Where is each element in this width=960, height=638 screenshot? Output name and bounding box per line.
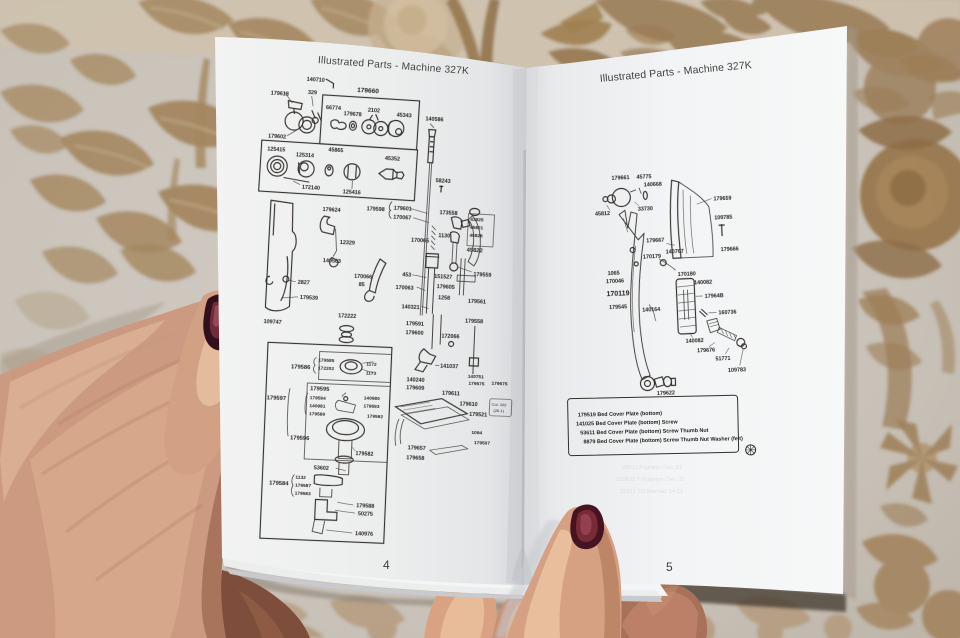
svg-text:170119: 170119 bbox=[606, 290, 629, 298]
svg-text:179558: 179558 bbox=[465, 319, 483, 326]
svg-text:179591: 179591 bbox=[406, 321, 424, 328]
svg-text:170180: 170180 bbox=[678, 271, 696, 278]
svg-text:51771: 51771 bbox=[715, 356, 730, 363]
svg-text:45343: 45343 bbox=[396, 113, 411, 120]
svg-text:179678: 179678 bbox=[343, 111, 361, 118]
svg-text:179660: 179660 bbox=[357, 87, 379, 95]
svg-text:125416: 125416 bbox=[343, 189, 361, 196]
svg-text:141037: 141037 bbox=[440, 364, 458, 371]
svg-text:109783: 109783 bbox=[728, 367, 746, 374]
svg-text:179595: 179595 bbox=[310, 386, 330, 393]
svg-text:2102: 2102 bbox=[368, 108, 380, 115]
svg-text:179507: 179507 bbox=[474, 440, 491, 447]
svg-text:140710: 140710 bbox=[307, 77, 325, 84]
svg-text:170046: 170046 bbox=[606, 278, 624, 285]
svg-text:125314: 125314 bbox=[296, 152, 314, 159]
svg-text:140751: 140751 bbox=[468, 374, 485, 381]
svg-text:66774: 66774 bbox=[326, 105, 341, 112]
svg-text:179582: 179582 bbox=[355, 451, 373, 458]
svg-text:1130: 1130 bbox=[438, 233, 450, 240]
svg-text:172066: 172066 bbox=[441, 334, 459, 341]
svg-text:5: 5 bbox=[666, 560, 673, 574]
svg-text:179575: 179575 bbox=[468, 381, 485, 388]
svg-text:453: 453 bbox=[402, 272, 411, 278]
svg-text:33730: 33730 bbox=[638, 206, 653, 213]
svg-text:58243: 58243 bbox=[435, 178, 450, 185]
svg-text:17964B: 17964B bbox=[705, 293, 724, 300]
svg-text:179593: 179593 bbox=[363, 403, 380, 410]
svg-text:129632 T Bughton Oec. 31: 129632 T Bughton Oec. 31 bbox=[616, 477, 685, 483]
svg-text:179592: 179592 bbox=[367, 414, 384, 421]
svg-text:45352: 45352 bbox=[385, 156, 400, 163]
svg-text:179667: 179667 bbox=[646, 238, 664, 245]
svg-text:179545: 179545 bbox=[609, 304, 627, 311]
svg-text:170067: 170067 bbox=[393, 215, 411, 222]
svg-text:179661: 179661 bbox=[611, 175, 629, 182]
svg-text:45775: 45775 bbox=[636, 174, 651, 181]
svg-text:179584: 179584 bbox=[269, 480, 289, 487]
svg-text:45812: 45812 bbox=[595, 211, 610, 218]
svg-text:179575: 179575 bbox=[491, 381, 508, 388]
svg-text:179610: 179610 bbox=[459, 401, 477, 408]
svg-text:1258: 1258 bbox=[438, 295, 450, 302]
svg-text:85: 85 bbox=[359, 282, 365, 288]
svg-text:179586: 179586 bbox=[291, 364, 311, 371]
svg-text:179605: 179605 bbox=[437, 284, 455, 291]
svg-text:140976: 140976 bbox=[355, 531, 373, 538]
svg-text:140668: 140668 bbox=[644, 182, 662, 189]
svg-text:179602: 179602 bbox=[268, 133, 286, 140]
svg-text:140767: 140767 bbox=[666, 249, 684, 256]
svg-text:179659: 179659 bbox=[713, 196, 731, 203]
svg-text:179594: 179594 bbox=[310, 395, 327, 402]
svg-text:4: 4 bbox=[383, 558, 390, 572]
svg-text:140981: 140981 bbox=[309, 403, 326, 410]
svg-text:179521: 179521 bbox=[469, 412, 487, 419]
svg-text:45826: 45826 bbox=[469, 233, 483, 240]
svg-text:109747: 109747 bbox=[263, 319, 281, 326]
svg-text:179666: 179666 bbox=[721, 246, 739, 253]
svg-text:50275: 50275 bbox=[358, 511, 373, 518]
svg-text:179588: 179588 bbox=[356, 503, 374, 510]
svg-text:179611: 179611 bbox=[442, 391, 460, 398]
svg-text:140321: 140321 bbox=[401, 304, 419, 311]
svg-text:179585: 179585 bbox=[318, 357, 335, 364]
svg-text:179658: 179658 bbox=[406, 455, 424, 462]
svg-text:172222: 172222 bbox=[338, 313, 356, 320]
svg-text:179676: 179676 bbox=[697, 348, 715, 355]
svg-text:179624: 179624 bbox=[322, 207, 340, 214]
svg-text:179596: 179596 bbox=[290, 435, 310, 442]
svg-text:173558: 173558 bbox=[439, 210, 457, 217]
svg-text:179561: 179561 bbox=[468, 299, 486, 306]
svg-text:125415: 125415 bbox=[267, 146, 285, 153]
svg-text:1172: 1172 bbox=[366, 361, 377, 367]
svg-text:179587: 179587 bbox=[295, 483, 312, 490]
svg-text:170063: 170063 bbox=[395, 285, 413, 292]
svg-text:172202: 172202 bbox=[318, 365, 335, 372]
svg-text:140082: 140082 bbox=[686, 338, 704, 345]
svg-text:179600: 179600 bbox=[405, 330, 423, 337]
svg-text:151527: 151527 bbox=[434, 274, 452, 281]
svg-text:32611 TO Machac 14-11: 32611 TO Machac 14-11 bbox=[620, 489, 683, 495]
svg-text:(26-1): (26-1) bbox=[493, 408, 505, 413]
svg-text:1173: 1173 bbox=[366, 370, 377, 376]
svg-text:170179: 170179 bbox=[643, 254, 661, 261]
svg-text:29611 Frighton Oec. 51: 29611 Frighton Oec. 51 bbox=[622, 465, 682, 471]
svg-text:179559: 179559 bbox=[473, 272, 491, 279]
svg-text:160736: 160736 bbox=[718, 310, 736, 317]
svg-text:329: 329 bbox=[308, 90, 317, 97]
svg-text:53602: 53602 bbox=[314, 465, 329, 472]
svg-text:1065: 1065 bbox=[608, 271, 620, 278]
svg-text:Col. 202: Col. 202 bbox=[492, 402, 508, 408]
svg-text:179597: 179597 bbox=[267, 395, 287, 402]
svg-text:2827: 2827 bbox=[298, 280, 310, 287]
svg-text:140082: 140082 bbox=[694, 280, 712, 287]
svg-text:179583: 179583 bbox=[295, 491, 312, 498]
svg-text:179589: 179589 bbox=[309, 411, 326, 418]
svg-text:45822: 45822 bbox=[466, 248, 482, 255]
svg-text:1132: 1132 bbox=[295, 475, 306, 481]
svg-text:1094: 1094 bbox=[471, 430, 482, 436]
svg-text:179539: 179539 bbox=[300, 295, 318, 302]
svg-text:179657: 179657 bbox=[408, 445, 426, 452]
svg-text:140980: 140980 bbox=[364, 395, 381, 402]
svg-text:179601: 179601 bbox=[394, 206, 412, 213]
svg-text:179598: 179598 bbox=[367, 206, 385, 213]
svg-text:179609: 179609 bbox=[406, 385, 424, 392]
svg-text:12329: 12329 bbox=[340, 240, 355, 247]
svg-text:140240: 140240 bbox=[406, 377, 424, 384]
svg-text:140586: 140586 bbox=[425, 116, 443, 123]
svg-text:172140: 172140 bbox=[302, 185, 320, 192]
svg-text:45865: 45865 bbox=[328, 147, 343, 154]
svg-text:109785: 109785 bbox=[714, 215, 732, 222]
svg-text:170066: 170066 bbox=[354, 274, 372, 281]
svg-text:170065: 170065 bbox=[411, 238, 429, 245]
